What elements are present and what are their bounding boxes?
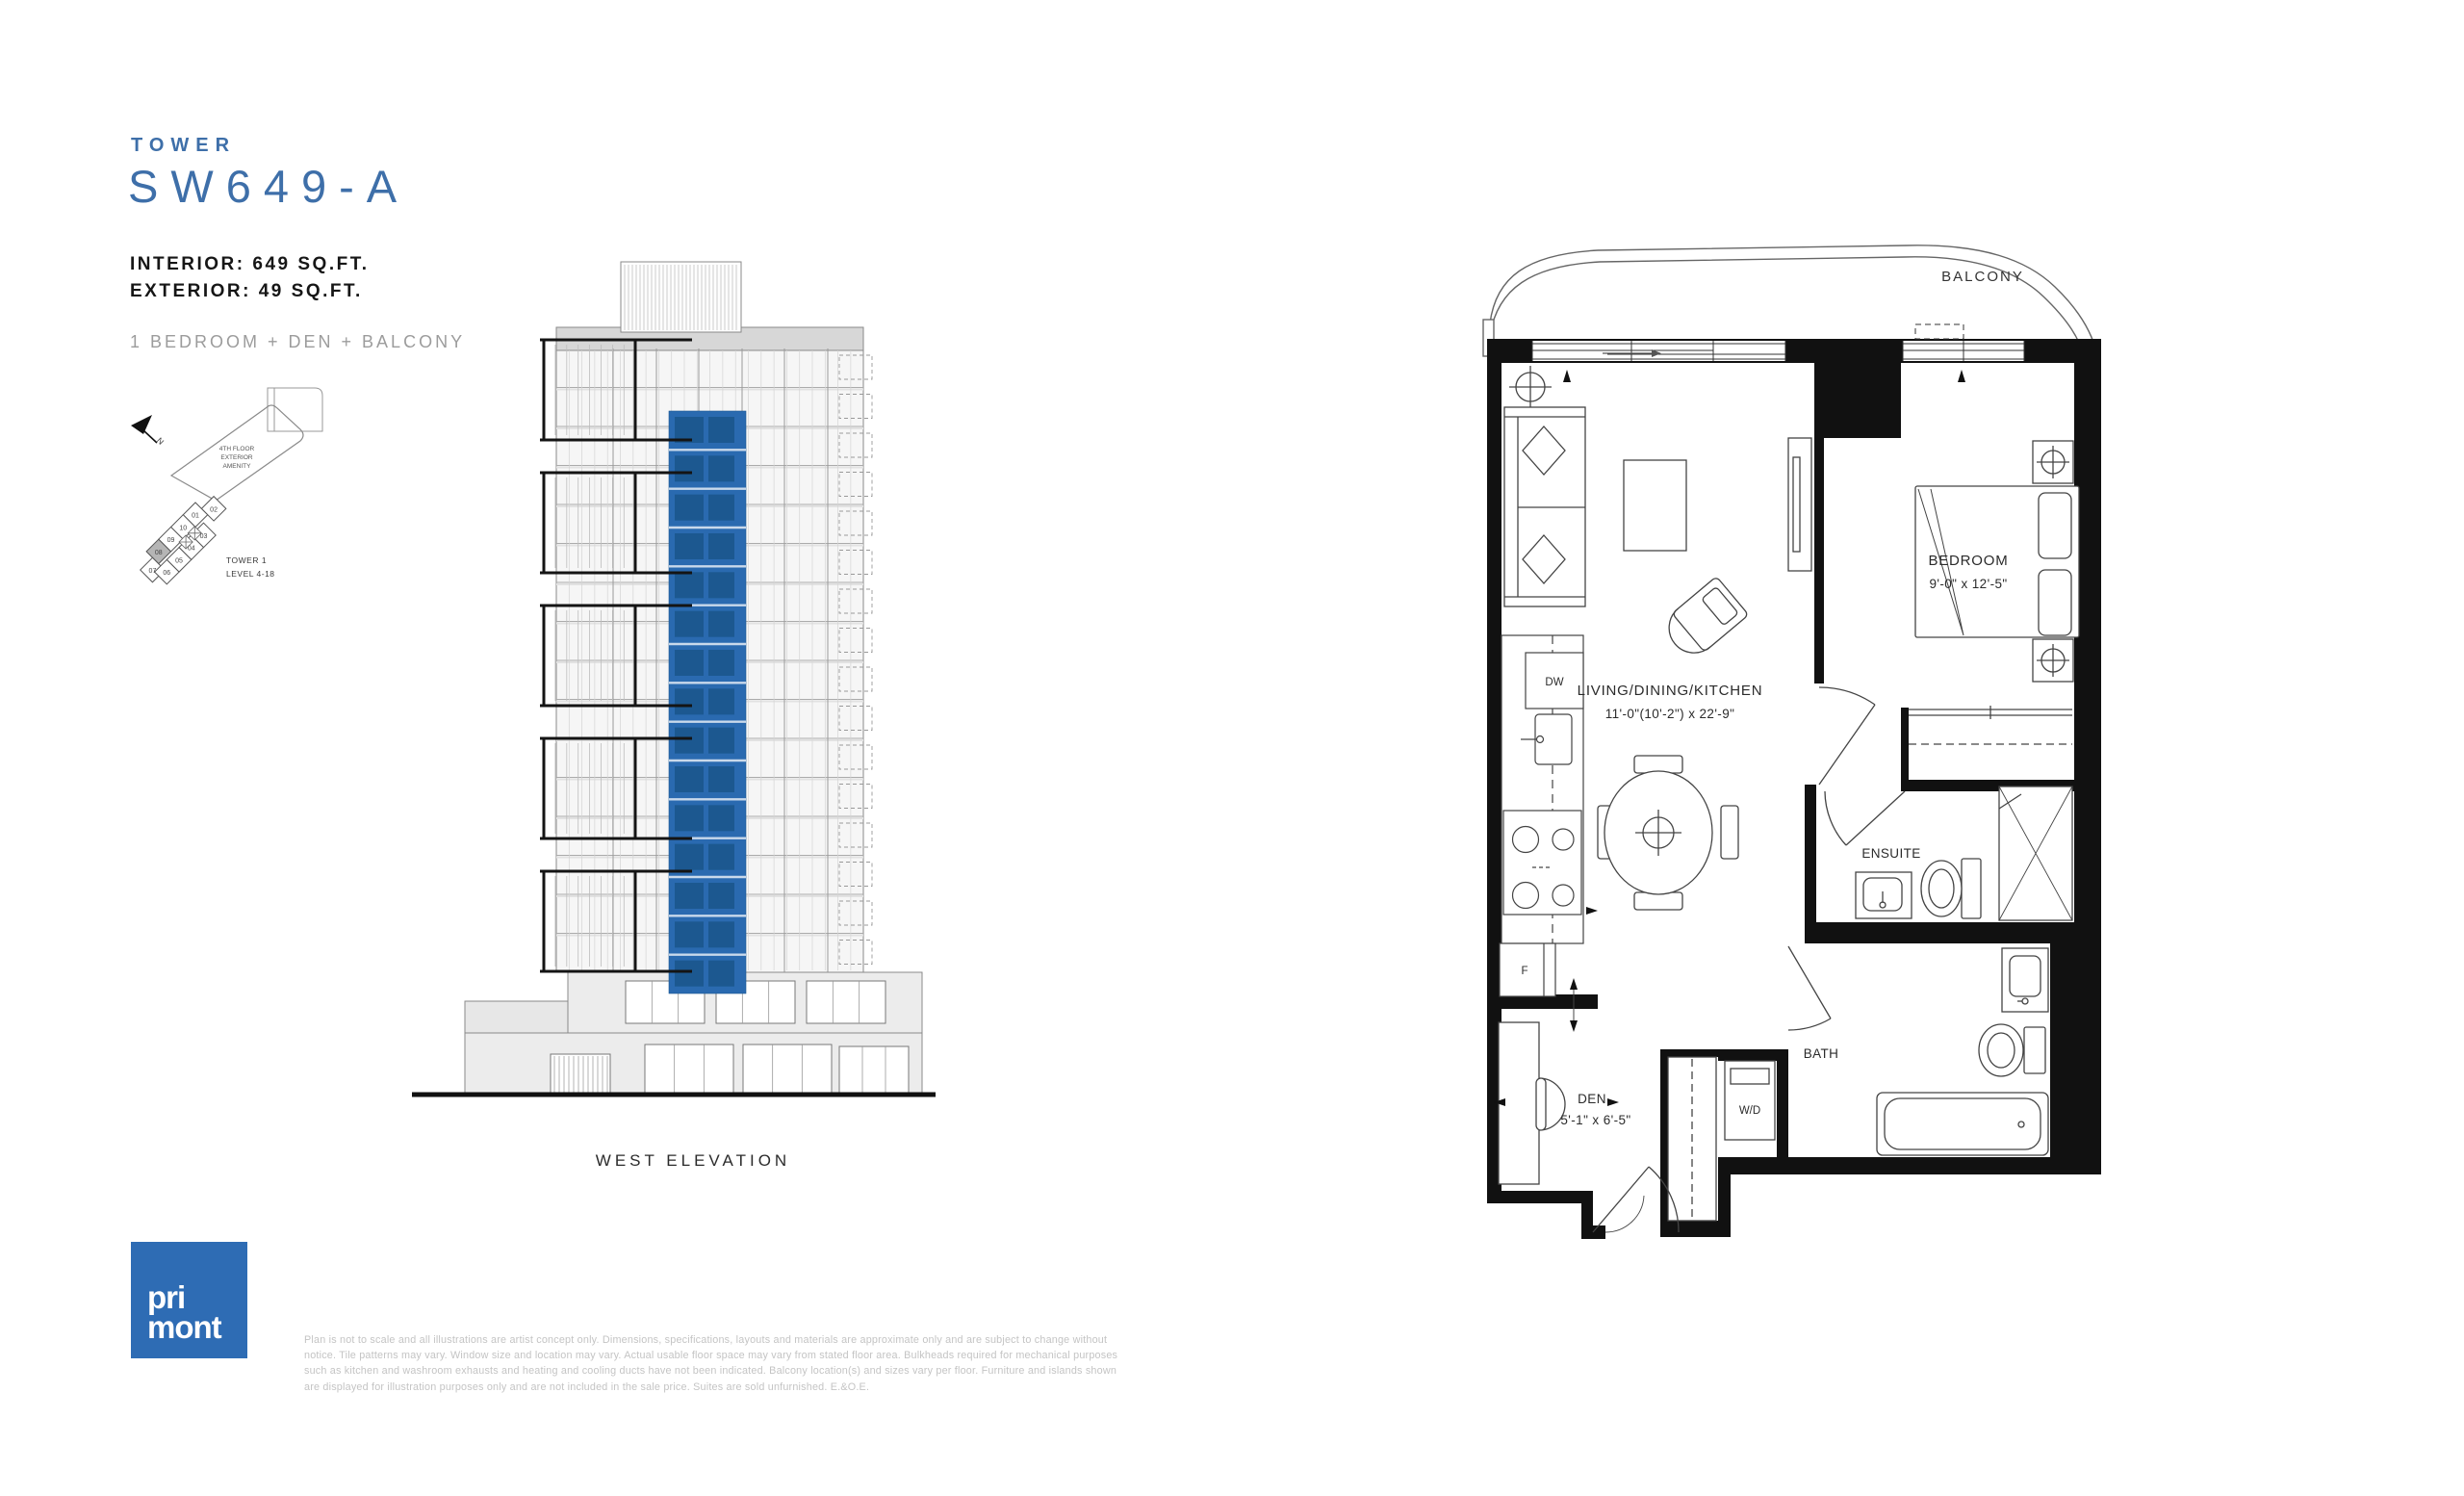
living-dims: 11'-0"(10'-2") x 22'-9" <box>1605 707 1735 721</box>
bath-door <box>1788 946 1831 1030</box>
mechanical-penthouse <box>621 262 741 332</box>
bathtub <box>1877 1093 2048 1155</box>
dw-label: DW <box>1545 677 1563 688</box>
north-arrow-icon: N <box>131 415 167 447</box>
vanity-sink <box>1856 872 1912 918</box>
elevation-caption: WEST ELEVATION <box>404 1151 982 1171</box>
building-elevation <box>404 255 943 1179</box>
fridge-label: F <box>1521 966 1527 977</box>
kitchen-area: DW F <box>1500 635 1583 996</box>
den-label: DEN <box>1578 1092 1606 1106</box>
toilet <box>1921 859 1981 918</box>
amenity-label: 4TH FLOOR <box>219 446 255 452</box>
tower-eyebrow: TOWER <box>131 135 236 157</box>
coffee-table <box>1624 460 1686 551</box>
bath-sink <box>2002 948 2048 1012</box>
svg-text:08: 08 <box>155 550 163 556</box>
amenity-outline: 4TH FLOOR EXTERIOR AMENITY <box>171 405 303 501</box>
keyplan-level-label: LEVEL 4-18 <box>226 569 275 579</box>
unit-cluster: 02 01 10 09 08 07 03 04 05 06 <box>134 490 234 590</box>
toilet <box>1979 1024 2045 1076</box>
bedroom-closet <box>1909 706 2072 744</box>
nightstand <box>2033 441 2073 483</box>
svg-text:04: 04 <box>188 546 195 553</box>
exterior-area: EXTERIOR: 49 SQ.FT. <box>130 278 369 305</box>
bedroom-door <box>1819 687 1875 785</box>
bedroom-dims: 9'-0" x 12'-5" <box>1929 577 2007 591</box>
interior-area: INTERIOR: 649 SQ.FT. <box>130 251 369 278</box>
bedroom-area <box>1819 441 2079 785</box>
living-label: LIVING/DINING/KITCHEN <box>1578 683 1763 699</box>
entry-closet <box>1668 1057 1716 1221</box>
keyplan-tower-label: TOWER 1 <box>226 555 267 565</box>
svg-text:AMENITY: AMENITY <box>223 463 252 470</box>
bath-label: BATH <box>1804 1046 1839 1061</box>
svg-text:03: 03 <box>200 533 208 540</box>
windows <box>1532 324 2024 382</box>
svg-text:09: 09 <box>167 537 175 544</box>
logo-line1: pri <box>147 1282 185 1312</box>
living-area <box>1504 366 1811 663</box>
dining-area <box>1586 756 1738 915</box>
floorplan-sheet: TOWER SW649-A INTERIOR: 649 SQ.FT. EXTER… <box>0 0 2464 1496</box>
accent-chair <box>1659 577 1749 663</box>
svg-text:EXTERIOR: EXTERIOR <box>220 454 253 461</box>
den-dims: 5'-1" x 6'-5" <box>1560 1113 1630 1127</box>
suite-stack-highlight <box>669 411 746 993</box>
plan-title: SW649-A <box>128 160 409 213</box>
bedroom-label: BEDROOM <box>1928 553 2008 569</box>
nightstand <box>2033 639 2073 682</box>
floor-plan: BALCONY <box>1482 231 2117 1261</box>
washer-dryer <box>1725 1061 1775 1140</box>
svg-text:07: 07 <box>149 568 157 575</box>
svg-text:06: 06 <box>163 570 170 577</box>
ensuite-door <box>1825 791 1905 845</box>
disclaimer-text: Plan is not to scale and all illustratio… <box>304 1332 1130 1395</box>
svg-text:10: 10 <box>179 525 187 531</box>
logo-line2: mont <box>147 1312 221 1342</box>
shower <box>1999 787 2072 920</box>
area-block: INTERIOR: 649 SQ.FT. EXTERIOR: 49 SQ.FT. <box>130 251 369 305</box>
balcony-label: BALCONY <box>1941 269 2024 285</box>
ensuite-label: ENSUITE <box>1861 846 1920 861</box>
ceiling-light-icon <box>1509 366 1552 408</box>
primont-logo: pri mont <box>131 1242 247 1358</box>
sofa <box>1504 407 1585 606</box>
svg-text:05: 05 <box>175 557 183 564</box>
stove <box>1503 811 1581 915</box>
wd-label: W/D <box>1739 1105 1760 1117</box>
svg-text:02: 02 <box>210 506 218 513</box>
keyplan: N 4TH FLOOR EXTERIOR AMENITY <box>123 387 325 594</box>
tv-unit <box>1788 438 1811 571</box>
north-label: N <box>155 435 167 447</box>
svg-text:01: 01 <box>192 513 199 520</box>
